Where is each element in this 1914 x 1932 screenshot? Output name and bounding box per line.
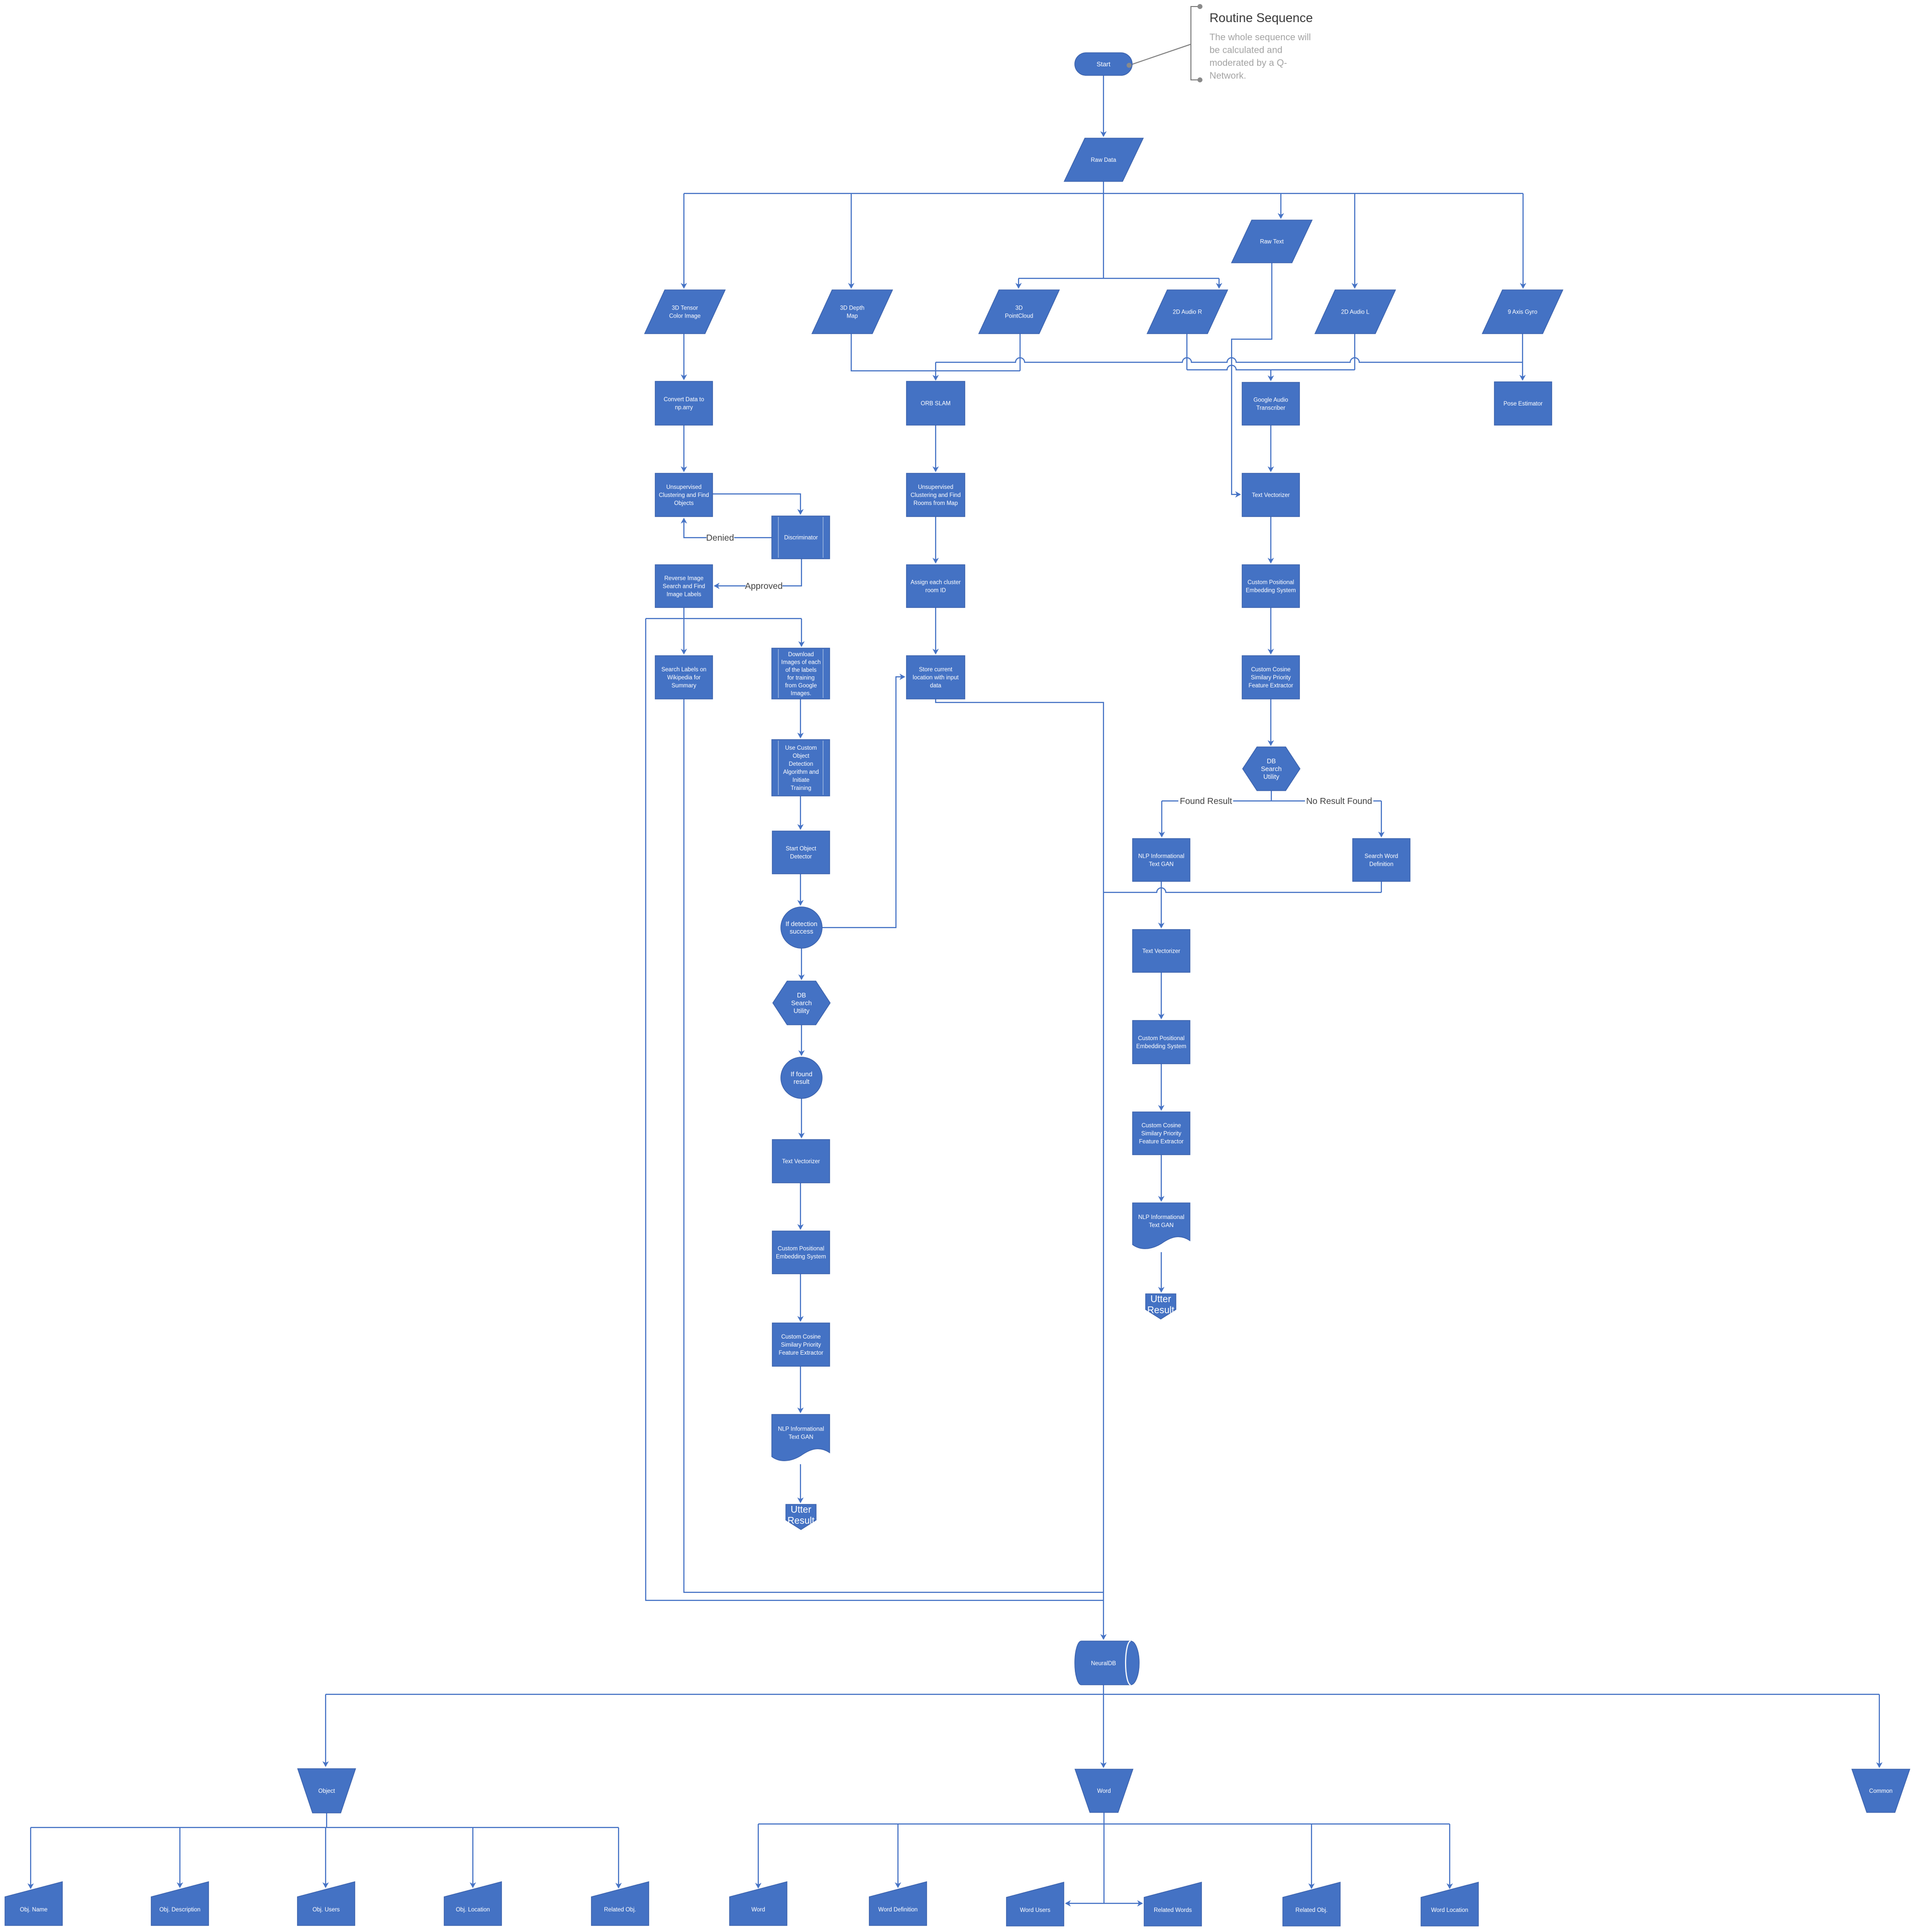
svg-text:Text Vectorizer: Text Vectorizer (1252, 492, 1290, 498)
svg-text:Obj. Users: Obj. Users (313, 1907, 340, 1913)
svg-text:UtterResult: UtterResult (787, 1505, 815, 1527)
svg-text:If foundresult: If foundresult (790, 1070, 812, 1085)
svg-text:Word Definition: Word Definition (878, 1907, 918, 1913)
svg-text:Word Users: Word Users (1020, 1907, 1051, 1913)
svg-text:Raw Data: Raw Data (1091, 157, 1117, 163)
svg-text:Denied: Denied (706, 533, 734, 543)
svg-text:Related Obj.: Related Obj. (1295, 1907, 1328, 1913)
svg-text:Raw Text: Raw Text (1260, 239, 1284, 245)
svg-text:Word: Word (1097, 1788, 1111, 1794)
svg-text:Discriminator: Discriminator (784, 535, 818, 541)
svg-text:NeuralDB: NeuralDB (1091, 1661, 1116, 1667)
svg-text:Word: Word (751, 1907, 765, 1913)
svg-text:Related Words: Related Words (1154, 1907, 1192, 1913)
svg-text:UnsupervisedClustering and Fin: UnsupervisedClustering and FindRooms fro… (911, 484, 961, 506)
svg-text:Custom CosineSimilary Priority: Custom CosineSimilary PriorityFeature Ex… (1139, 1123, 1184, 1145)
svg-text:Related Obj.: Related Obj. (604, 1907, 636, 1913)
svg-text:Start: Start (1096, 60, 1111, 68)
svg-text:Obj. Name: Obj. Name (20, 1907, 48, 1913)
svg-text:2D Audio L: 2D Audio L (1341, 310, 1370, 316)
svg-text:UtterResult: UtterResult (1147, 1294, 1175, 1316)
svg-text:Approved: Approved (745, 581, 783, 591)
svg-text:Word Location: Word Location (1431, 1907, 1468, 1913)
svg-text:Pose Estimator: Pose Estimator (1503, 401, 1543, 407)
svg-text:Obj. Location: Obj. Location (456, 1907, 490, 1913)
svg-text:9 Axis Gyro: 9 Axis Gyro (1508, 310, 1538, 316)
svg-text:Object: Object (318, 1788, 335, 1794)
svg-text:ORB SLAM: ORB SLAM (921, 401, 950, 407)
svg-text:If detectionsuccess: If detectionsuccess (785, 920, 818, 935)
svg-text:Custom CosineSimilary Priority: Custom CosineSimilary PriorityFeature Ex… (1249, 667, 1293, 689)
svg-text:Text Vectorizer: Text Vectorizer (782, 1159, 820, 1165)
svg-text:Text Vectorizer: Text Vectorizer (1142, 949, 1180, 955)
svg-text:Routine Sequence: Routine Sequence (1210, 11, 1313, 25)
svg-text:Common: Common (1869, 1788, 1893, 1794)
svg-text:No Result Found: No Result Found (1306, 796, 1372, 806)
svg-text:Found Result: Found Result (1180, 796, 1232, 806)
svg-text:Reverse ImageSearch and FindIm: Reverse ImageSearch and FindImage Labels (663, 576, 705, 598)
svg-text:Custom CosineSimilary Priority: Custom CosineSimilary PriorityFeature Ex… (779, 1334, 824, 1356)
svg-text:Obj. Description: Obj. Description (159, 1907, 200, 1913)
svg-text:2D Audio R: 2D Audio R (1173, 310, 1202, 316)
